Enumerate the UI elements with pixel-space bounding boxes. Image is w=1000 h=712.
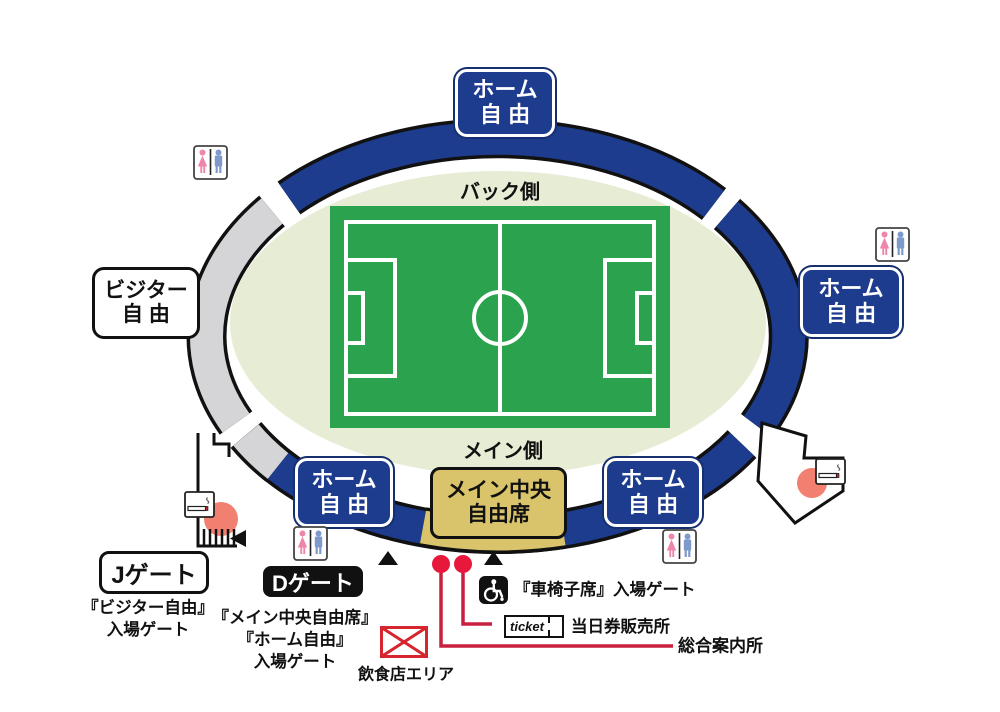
j-gate-badge: Jゲート	[99, 551, 209, 594]
stand-badge-line: ホーム	[620, 468, 685, 493]
wheelchair-gate-label: 『車椅子席』入場ゲート	[514, 579, 696, 601]
pitch	[330, 206, 670, 428]
d-gate-desc-line: 『ホーム自由』	[213, 629, 378, 651]
stand-badge-line: 自由	[122, 303, 176, 327]
info-center-label: 総合案内所	[678, 636, 763, 659]
food-area-label: 飲食店エリア	[358, 664, 454, 685]
restroom-icon	[193, 145, 228, 180]
food-area-envelope-icon	[380, 626, 428, 658]
stand-badge-home-top: ホーム 自由	[455, 69, 555, 137]
stand-badge-line: 自由	[628, 493, 684, 518]
d-gate-arrow-icon	[378, 551, 398, 565]
ticket-sales-label: 当日券販売所	[571, 616, 670, 638]
stand-badge-line: 自由	[826, 302, 882, 327]
ticket-icon: ticket	[504, 615, 564, 638]
j-gate-description: 『ビジター自由』 入場ゲート	[82, 597, 214, 641]
smoking-area-icon	[815, 458, 846, 485]
j-gate-desc-line: 『ビジター自由』	[82, 597, 214, 619]
smoking-area-icon	[184, 491, 215, 518]
stand-badge-home-bottom-right: ホーム 自由	[604, 458, 702, 527]
j-gate-arrow-icon	[230, 530, 246, 547]
ticket-icon-text: ticket	[506, 619, 548, 634]
map-pin	[432, 555, 450, 573]
back-side-label: バック側	[460, 176, 540, 205]
stand-badge-line: ホーム	[311, 468, 376, 493]
restroom-icon	[662, 529, 697, 564]
restroom-icon	[875, 227, 910, 262]
wheelchair-icon	[479, 576, 508, 604]
stand-badge-home-bottom-left: ホーム 自由	[295, 458, 393, 527]
d-gate-desc-line: 『メイン中央自由席』	[213, 607, 378, 629]
d-gate-desc-line: 入場ゲート	[213, 651, 378, 673]
map-pin	[454, 555, 472, 573]
main-side-label: メイン側	[463, 435, 543, 464]
stand-badge-line: ホーム	[818, 277, 883, 302]
stand-badge-home-right: ホーム 自由	[800, 267, 902, 337]
stand-badge-line: 自由	[480, 103, 536, 128]
stand-badge-visitor-left: ビジター 自由	[92, 267, 200, 339]
stand-badge-line: メイン中央	[446, 479, 551, 503]
j-gate-desc-line: 入場ゲート	[82, 619, 214, 641]
stand-badge-line: 自由席	[467, 503, 530, 527]
ticket-perforation	[548, 617, 550, 636]
stadium-map: ホーム 自由 ホーム 自由 ビジター 自由 ホーム 自由 ホーム 自由 メイン中…	[0, 0, 1000, 712]
d-gate-badge: Dゲート	[263, 566, 363, 597]
stand-badge-main-center: メイン中央 自由席	[430, 467, 567, 539]
stand-badge-line: ホーム	[472, 78, 537, 103]
stand-badge-line: ビジター	[104, 279, 188, 303]
d-gate-description: 『メイン中央自由席』 『ホーム自由』 入場ゲート	[213, 607, 378, 673]
stand-badge-line: 自由	[319, 493, 375, 518]
restroom-icon	[293, 526, 328, 561]
